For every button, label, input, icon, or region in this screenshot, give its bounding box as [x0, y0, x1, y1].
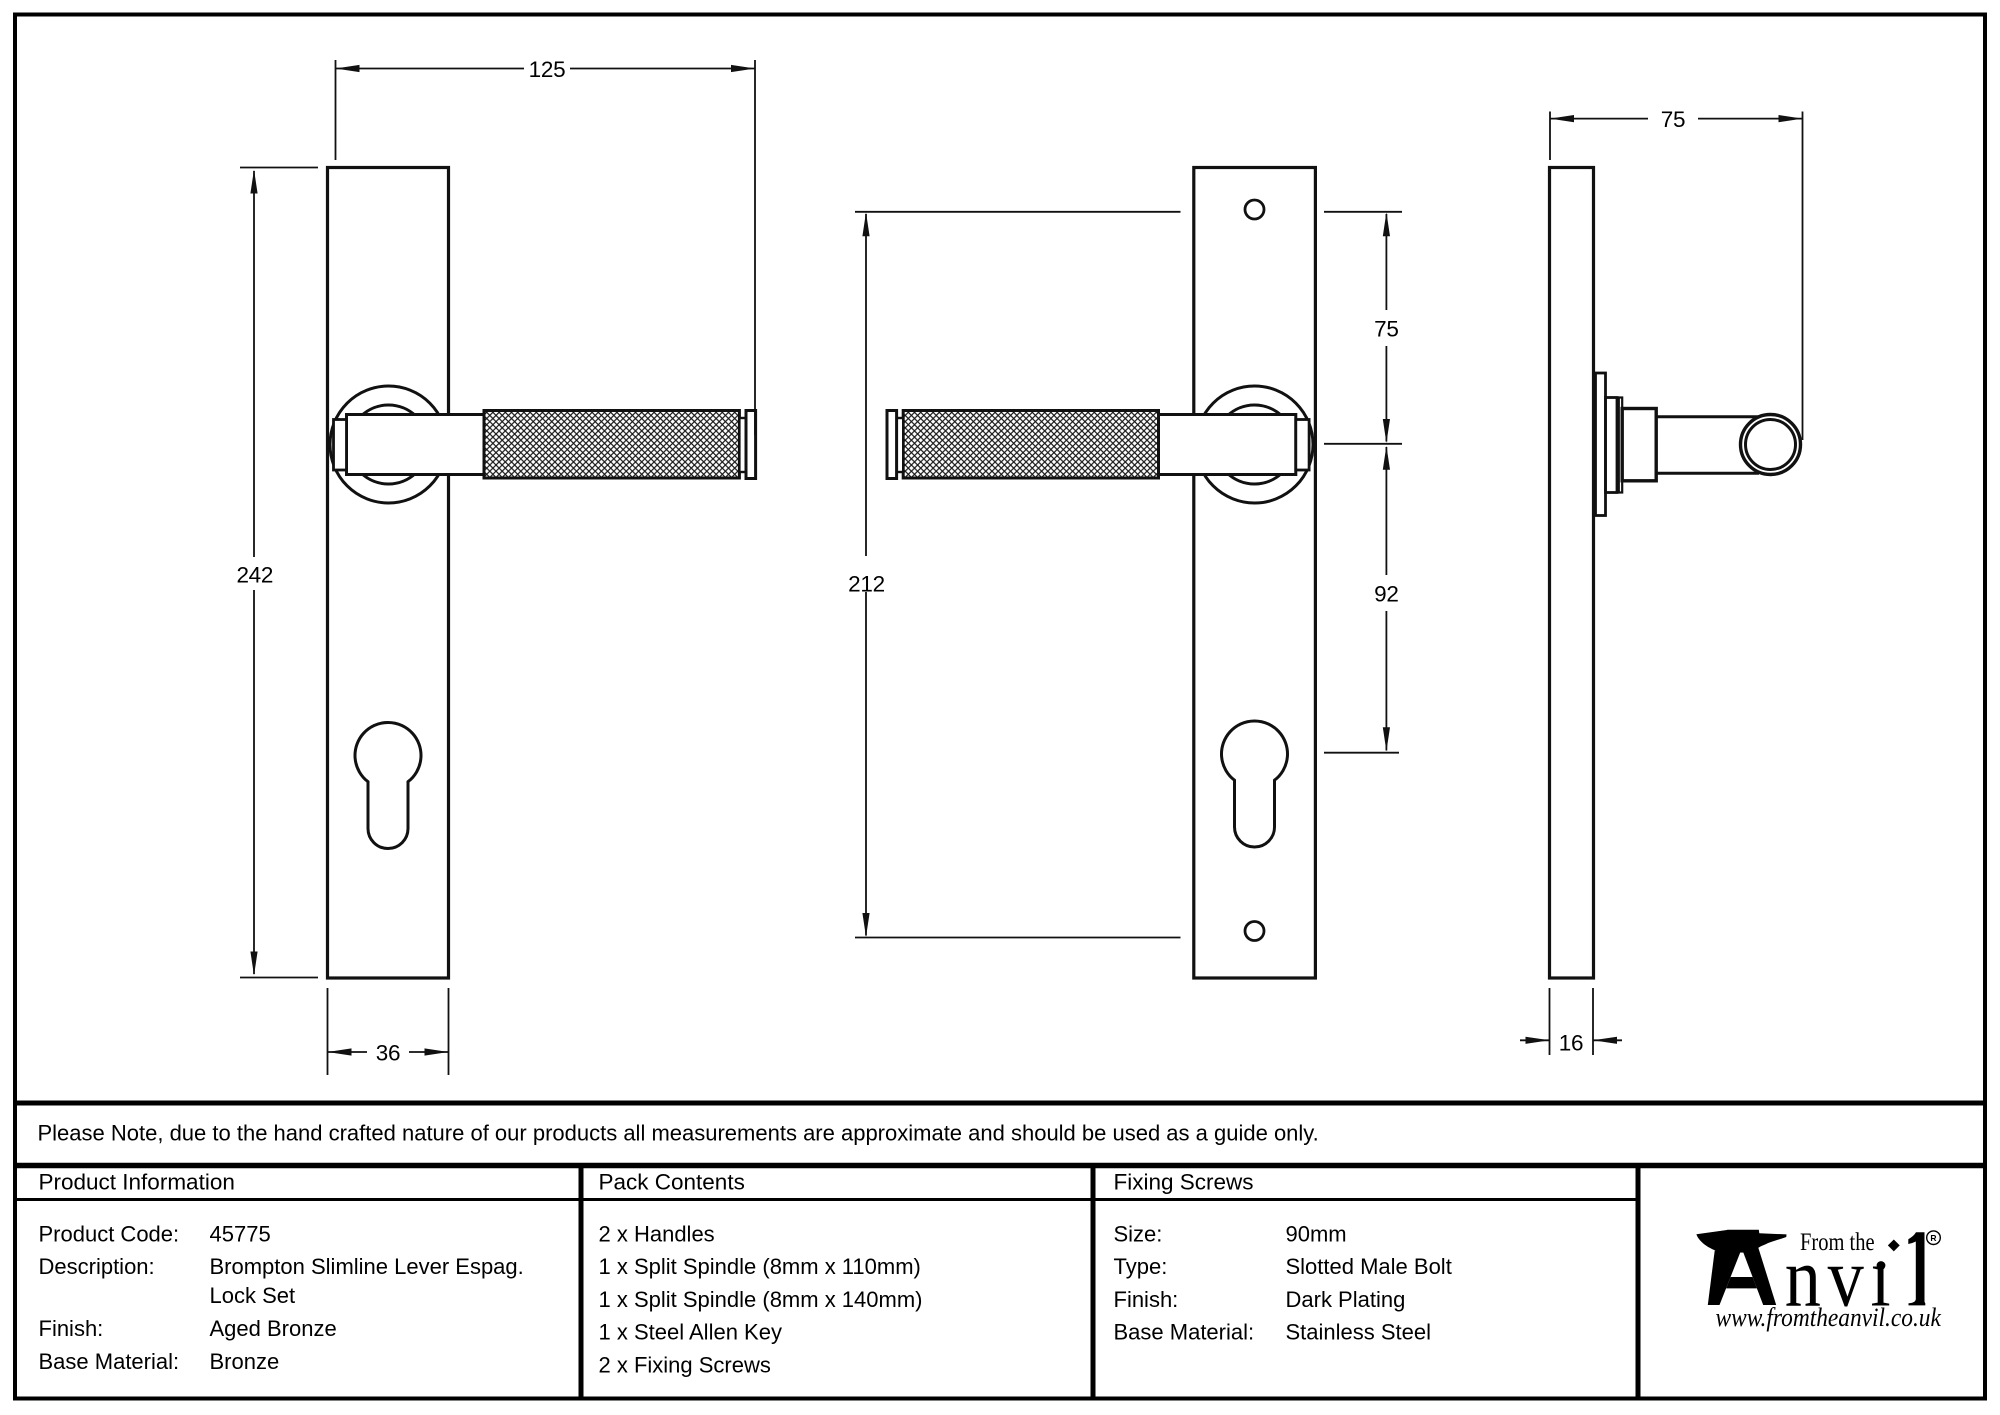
svg-text:1 x Split Spindle (8mm x 140mm: 1 x Split Spindle (8mm x 140mm) — [599, 1287, 923, 1312]
svg-text:Base Material:: Base Material: — [39, 1349, 180, 1374]
svg-text:1 x Split Spindle (8mm x 110mm: 1 x Split Spindle (8mm x 110mm) — [599, 1254, 921, 1279]
svg-text:Please Note, due to the hand c: Please Note, due to the hand crafted nat… — [38, 1121, 1319, 1146]
svg-text:92: 92 — [1374, 582, 1398, 607]
svg-text:75: 75 — [1661, 107, 1685, 132]
svg-text:2 x Handles: 2 x Handles — [599, 1222, 715, 1247]
svg-text:16: 16 — [1559, 1031, 1583, 1056]
svg-text:From the: From the — [1800, 1228, 1875, 1255]
svg-text:242: 242 — [236, 563, 273, 588]
svg-text:125: 125 — [529, 57, 566, 82]
svg-text:2 x Fixing Screws: 2 x Fixing Screws — [599, 1353, 771, 1378]
svg-text:Dark Plating: Dark Plating — [1286, 1287, 1406, 1312]
svg-text:Base Material:: Base Material: — [1114, 1320, 1255, 1345]
svg-text:90mm: 90mm — [1286, 1222, 1347, 1247]
svg-text:Type:: Type: — [1114, 1254, 1168, 1279]
svg-text:Pack Contents: Pack Contents — [599, 1170, 745, 1195]
svg-text:212: 212 — [848, 572, 885, 597]
svg-text:Product Information: Product Information — [39, 1170, 235, 1195]
svg-text:Lock Set: Lock Set — [210, 1283, 296, 1308]
svg-text:Fixing Screws: Fixing Screws — [1114, 1170, 1254, 1195]
svg-text:Size:: Size: — [1114, 1222, 1163, 1247]
svg-text:Finish:: Finish: — [39, 1316, 104, 1341]
svg-text:Finish:: Finish: — [1114, 1287, 1179, 1312]
svg-text:45775: 45775 — [210, 1222, 271, 1247]
svg-text:1 x Steel Allen Key: 1 x Steel Allen Key — [599, 1320, 782, 1345]
svg-text:Description:: Description: — [39, 1254, 155, 1279]
svg-text:Brompton Slimline Lever Espag.: Brompton Slimline Lever Espag. — [210, 1254, 524, 1279]
svg-text:36: 36 — [376, 1041, 400, 1066]
svg-text:Slotted Male Bolt: Slotted Male Bolt — [1286, 1254, 1452, 1279]
svg-text:Aged Bronze: Aged Bronze — [210, 1316, 337, 1341]
svg-text:www.fromtheanvil.co.uk: www.fromtheanvil.co.uk — [1716, 1304, 1942, 1332]
svg-text:Product Code:: Product Code: — [39, 1222, 180, 1247]
svg-text:R: R — [1930, 1233, 1936, 1243]
svg-text:Bronze: Bronze — [210, 1349, 280, 1374]
svg-text:75: 75 — [1374, 317, 1398, 342]
svg-text:Stainless Steel: Stainless Steel — [1286, 1320, 1432, 1345]
